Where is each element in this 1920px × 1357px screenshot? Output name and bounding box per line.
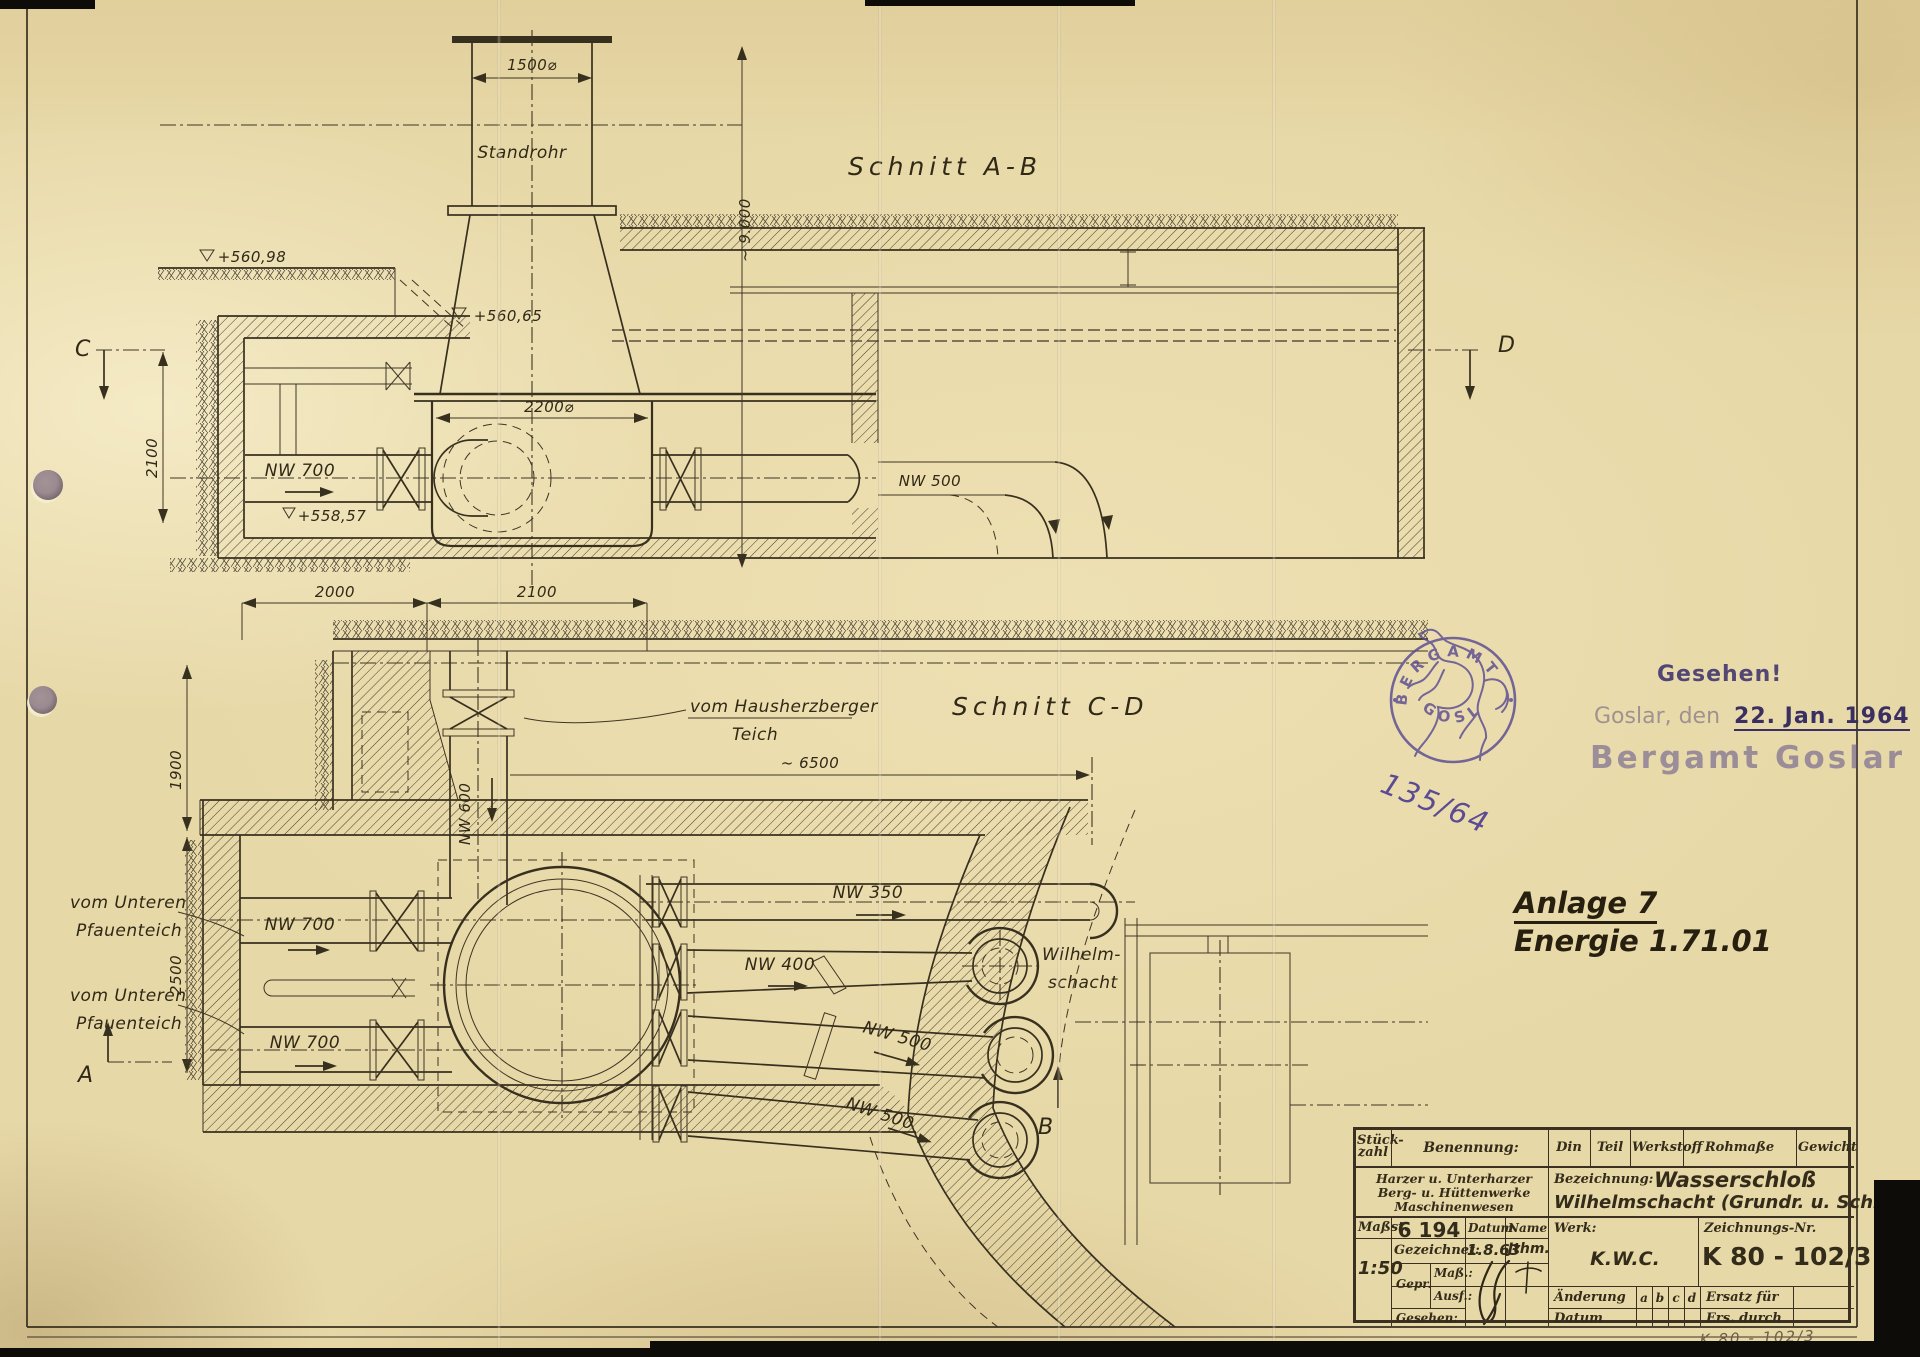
section-cd-title: Schnitt C-D [952,692,1149,721]
paper-crease [1057,0,1061,1357]
dim-6500: ~ 6500 [781,754,840,772]
marker-d: D [1498,333,1515,358]
level-560-65: +560,65 [474,307,543,325]
tb-gepr-label: Gepr. [1396,1277,1432,1291]
tunnel-arch [870,807,1175,1327]
nw600-pipe: NW 600 [443,640,514,905]
feed1-line2: Pfauenteich [76,921,182,941]
nw500-pipes: NW 500 NW 500 Wilhelm- schacht [653,945,1121,1178]
scan-edge [650,1341,1920,1357]
tb-znr-label: Zeichnungs-Nr. [1704,1221,1816,1236]
paper-crease [1272,0,1276,1357]
tb-company: Harzer u. Unterharzer Berg- u. Hüttenwer… [1364,1172,1544,1214]
feed2-line2: Pfauenteich [76,1014,182,1034]
tb-aenderung-label: Änderung [1554,1290,1626,1305]
feed1-line1: vom Unteren [70,893,187,913]
anlage-line1: Anlage 7 [1514,886,1657,924]
tb-gewicht: Gewicht [1798,1140,1852,1155]
tb-bezeichnung-label: Bezeichnung: [1554,1172,1653,1187]
tb-massstab-value: 1:50 [1358,1258,1403,1279]
dim-2100-top: 2100 [517,583,557,601]
nw350-label: NW 350 [833,883,903,903]
title-block: Stück-zahl Benennung: Din Teil Werkstoff… [1353,1127,1851,1323]
stamp-top-text: BERGAMT [1392,642,1504,706]
marker-a: A [76,1063,94,1088]
tb-werk-label: Werk: [1554,1221,1596,1236]
anlage-annotation: Anlage 7 Energie 1.71.01 [1514,886,1772,958]
section-markers-cd-cut: C D 2100 [75,333,1515,523]
anlage-line2: Energie 1.71.01 [1514,924,1772,958]
tb-datum2-label: Datum [1554,1311,1603,1326]
punch-hole-bottom [29,686,57,714]
nw700-label-ab: NW 700 [265,461,335,481]
tb-order-number: 6 194 [1394,1218,1464,1242]
tb-mass-label: Maß.: [1434,1266,1473,1280]
dim-2200-label: 2200⌀ [524,398,574,416]
dim-9000: ~ 9.000 [736,46,754,568]
scan-edge [1874,1180,1920,1357]
gesehen-stamp-line2: Goslar, den22. Jan. 1964 [1594,704,1910,729]
stamp-register-number: 135/64 [1376,766,1494,840]
tb-bezeichnung-1: Wasserschloß [1654,1168,1816,1192]
level-558-57: +558,57 [298,507,367,525]
wilhelmschacht-line1: Wilhelm- [1042,945,1121,965]
nw500-label-ab: NW 500 [899,472,961,490]
dim-1500-label: 1500⌀ [507,56,557,74]
tb-ausf-label: Ausf.: [1434,1289,1472,1303]
tb-rohmasse: Rohmaße [1685,1140,1794,1155]
gesehen-stamp-place: Goslar, den [1594,704,1720,729]
tb-stueckzahl: Stück-zahl [1357,1135,1389,1159]
tb-rev-d: d [1685,1291,1699,1305]
dim-2000: 2000 [315,583,355,601]
tb-ers-durch-label: Ers. durch [1706,1311,1782,1326]
marker-c: C [75,337,91,362]
tb-datum-label: Datum [1468,1221,1513,1235]
tb-gezeichnet-name: Jthm. [1508,1241,1550,1257]
marker-b: B [1038,1115,1054,1140]
tb-name-label: Name [1508,1221,1547,1235]
right-hall [620,214,1425,558]
feed-top-line1: vom Hausherzberger [690,697,878,717]
paper-crease [878,0,882,1357]
tb-rev-c: c [1669,1291,1683,1305]
tb-bezeichnung-2: Wilhelmschacht (Grundr. u. Schnitt) [1554,1192,1917,1213]
tb-teil: Teil [1592,1140,1628,1155]
feed2-line1: vom Unteren [70,986,187,1006]
stamp-arc-top: BERGAMT [1392,642,1504,706]
nw700-1-label: NW 700 [265,915,335,935]
cd-top-wall [200,620,1428,835]
dim-1900: 1900 [167,750,185,790]
scan-edge [865,0,1135,6]
feed-top-line2: Teich [732,725,778,745]
tb-rev-b: b [1653,1291,1667,1305]
level-560-98: +560,98 [218,248,287,266]
paper-crease [497,0,501,1357]
tb-werkstoff: Werkstoff [1632,1140,1681,1155]
tb-gesehen-label: Gesehen: [1396,1311,1458,1325]
tb-znr-value: K 80 - 102/3 [1702,1242,1852,1271]
water-level: +560,65 [452,307,1396,341]
gesehen-stamp-date: 22. Jan. 1964 [1734,704,1910,731]
dim-2100-left: 2100 [143,438,161,478]
section-cd-drawing: Schnitt C-D 2000 [70,583,1428,1327]
nw600-label: NW 600 [456,783,474,845]
punch-hole-top [33,470,63,500]
gesehen-stamp-line1: Gesehen! [1657,662,1782,687]
surge-tank-section: 2200⌀ [432,398,652,546]
nw400-label: NW 400 [745,955,815,975]
gesehen-stamp-line3: Bergamt Goslar [1590,740,1905,776]
scanned-technical-drawing: 1500⌀ Standrohr ~ 9.000 Schnitt A-B +560… [0,0,1920,1357]
nw700-2-label: NW 700 [270,1033,340,1053]
tb-werk-value: K.W.C. [1556,1248,1694,1270]
tb-din: Din [1550,1140,1588,1155]
section-ab-drawing: 1500⌀ Standrohr ~ 9.000 Schnitt A-B +560… [75,30,1515,585]
nw700-inlet-ab: NW 700 +558,57 [170,362,876,525]
standrohr-label: Standrohr [477,143,567,163]
tb-rev-a: a [1637,1291,1651,1305]
tb-ersatz-label: Ersatz für [1706,1290,1778,1305]
tb-benennung: Benennung: [1396,1140,1546,1156]
scan-edge [0,0,95,9]
feed-hausherzberger: vom Hausherzberger Teich [524,697,878,745]
